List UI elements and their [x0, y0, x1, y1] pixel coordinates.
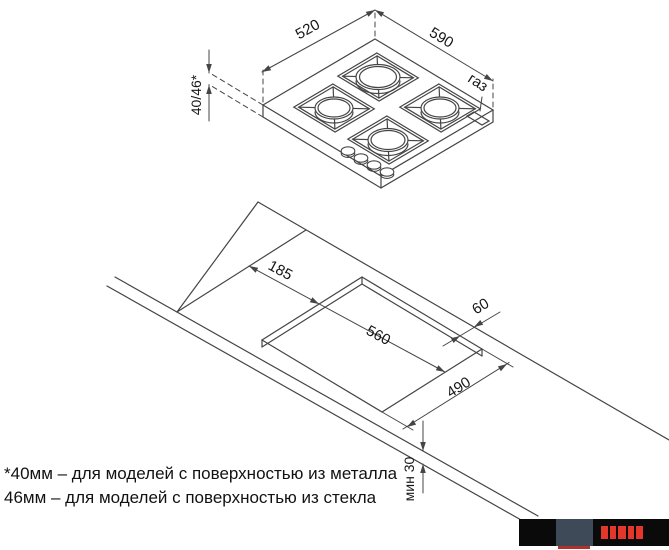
dimension-185-560 — [249, 266, 445, 372]
worktop-left-cut-edge — [177, 202, 258, 312]
side-offset-label: 185 — [265, 257, 295, 284]
worktop-thickness-label: мин 30 — [401, 456, 417, 501]
gas-label: газ — [465, 70, 491, 95]
watermark-logo-red-text — [601, 526, 643, 539]
hob-height-label: 40/46* — [188, 74, 204, 115]
rear-clearance-label: 60 — [469, 295, 492, 318]
watermark-logo-substrip — [558, 546, 590, 549]
worktop-back-edge — [258, 202, 669, 440]
cutout-length-label: 560 — [363, 322, 393, 349]
dimension-min-30 — [420, 421, 426, 493]
hob-width-label: 520 — [293, 16, 323, 43]
installation-diagram-page: 520 590 газ 40/46* — [0, 0, 669, 550]
cutout-width-label: 490 — [444, 374, 474, 402]
footnote-glass-surface: 46мм – для моделей с поверхностью из сте… — [4, 488, 376, 508]
footnote-metal-surface: *40мм – для моделей с поверхностью из ме… — [4, 464, 397, 484]
dimension-60 — [443, 312, 500, 346]
hob-length-label: 590 — [426, 24, 456, 51]
dimension-height — [206, 50, 263, 121]
watermark-logo-square — [556, 519, 593, 546]
watermark-logo — [519, 519, 669, 546]
